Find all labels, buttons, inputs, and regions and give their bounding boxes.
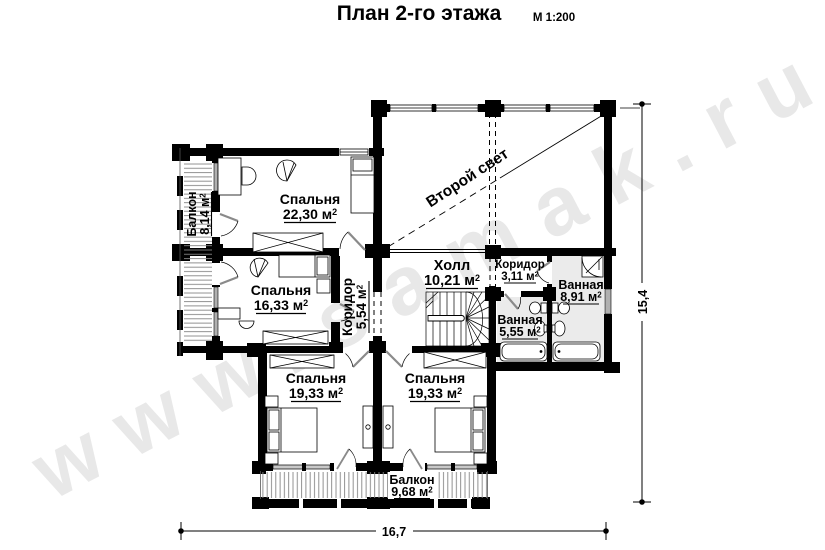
svg-text:16,7: 16,7 [382, 525, 406, 539]
svg-text:Спальня: Спальня [251, 282, 311, 298]
svg-text:19,33 м2: 19,33 м2 [408, 385, 462, 401]
svg-text:19,33 м2: 19,33 м2 [289, 385, 343, 401]
svg-text:8,14 м2: 8,14 м2 [198, 193, 212, 235]
svg-text:9,68 м2: 9,68 м2 [391, 485, 433, 499]
svg-text:Спальня: Спальня [286, 370, 346, 386]
svg-text:8,91 м2: 8,91 м2 [560, 290, 602, 304]
svg-text:Холл: Холл [434, 258, 470, 274]
svg-text:3,11 м2: 3,11 м2 [501, 270, 539, 284]
svg-text:22,30 м2: 22,30 м2 [283, 206, 337, 222]
svg-text:Коридор: Коридор [340, 278, 355, 336]
svg-text:План 2-го этажа: План 2-го этажа [337, 2, 502, 25]
svg-text:Балкон: Балкон [185, 191, 199, 236]
svg-text:5,54 м2: 5,54 м2 [354, 284, 369, 329]
svg-text:Спальня: Спальня [280, 191, 340, 207]
svg-text:10,21 м2: 10,21 м2 [424, 273, 480, 289]
svg-text:5,55 м2: 5,55 м2 [499, 325, 541, 339]
svg-text:15,4: 15,4 [636, 290, 650, 314]
svg-text:16,33 м2: 16,33 м2 [254, 297, 308, 313]
svg-text:Спальня: Спальня [405, 370, 465, 386]
svg-text:М 1:200: М 1:200 [533, 12, 575, 24]
